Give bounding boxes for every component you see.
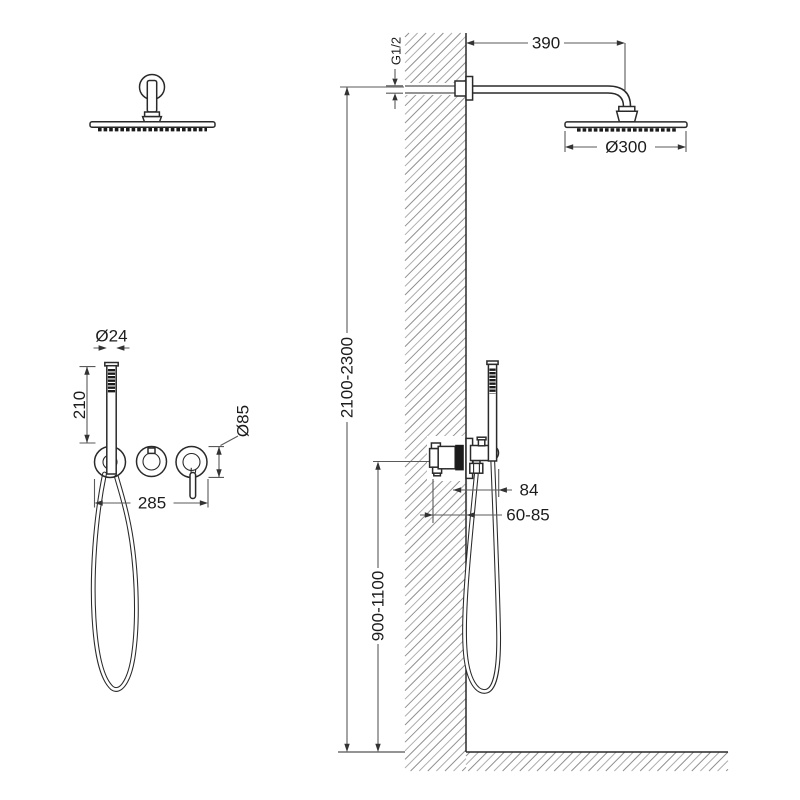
- arm-tube-front: [147, 81, 156, 113]
- hose-core-front: [93, 474, 136, 690]
- dim-arm-length: 390: [466, 34, 625, 91]
- wall-hatching: [405, 33, 466, 771]
- wand-body-front: [107, 366, 116, 474]
- arm-length-label: 390: [532, 34, 560, 53]
- hose-core-side: [465, 462, 499, 691]
- dim-thread: G1/2: [386, 37, 404, 109]
- dim-hand-shower-length: 210: [70, 367, 96, 443]
- dim-valve-height: 900-1100: [369, 462, 388, 753]
- thread-size-label: G1/2: [389, 37, 404, 65]
- mixer-lever-handle: [190, 473, 196, 499]
- overhead-shower-front-view: [90, 75, 215, 130]
- shower-head-plate-side: [565, 122, 687, 128]
- holder-projection-label: 84: [520, 481, 539, 500]
- head-diameter-label: Ø300: [605, 138, 647, 157]
- shower-arm-outer: [473, 86, 631, 107]
- handle-diameter-label: Ø24: [95, 327, 127, 346]
- floor-section: [466, 752, 728, 771]
- diverter-knob-circle: [143, 453, 160, 470]
- floor-hatching: [466, 752, 728, 771]
- head-connector-flange: [617, 111, 638, 122]
- head-height-label: 2100-2300: [338, 337, 357, 418]
- shower-arm-inner: [473, 93, 624, 107]
- dim-escutcheon-diameter: Ø85: [209, 405, 253, 477]
- valve-main-body: [438, 446, 455, 468]
- wall-fitting: [455, 81, 466, 96]
- connector-flange-front: [143, 117, 162, 122]
- valve-height-label: 900-1100: [369, 571, 388, 642]
- install-depth-label: 60-85: [506, 506, 549, 525]
- hose-nut: [470, 463, 483, 473]
- trim-width-label: 285: [138, 494, 166, 513]
- technical-drawing: 390 G1/2 Ø300 Ø24 210 Ø85: [0, 0, 800, 800]
- shower-head-plate-front: [90, 122, 215, 127]
- dim-head-diameter: Ø300: [565, 131, 686, 157]
- valve-rear-block: [430, 449, 439, 468]
- wall-section: [405, 33, 466, 771]
- hand-shower-length-label: 210: [70, 391, 89, 419]
- dim-handle-diameter: Ø24: [94, 327, 130, 351]
- wand-body-side: [488, 364, 496, 461]
- arm-escutcheon-side: [466, 77, 473, 101]
- holder-knob-cap: [477, 437, 486, 440]
- escutcheon-diameter-label: Ø85: [234, 405, 253, 437]
- valve-inlet-cap: [434, 473, 441, 476]
- dim-head-height: 2100-2300: [338, 87, 405, 752]
- shower-installation-drawing: 390 G1/2 Ø300 Ø24 210 Ø85: [0, 0, 800, 800]
- valve-cartridge: [455, 445, 464, 471]
- hand-shower-trim-front-view: [93, 363, 207, 690]
- diverter-notch: [148, 448, 155, 453]
